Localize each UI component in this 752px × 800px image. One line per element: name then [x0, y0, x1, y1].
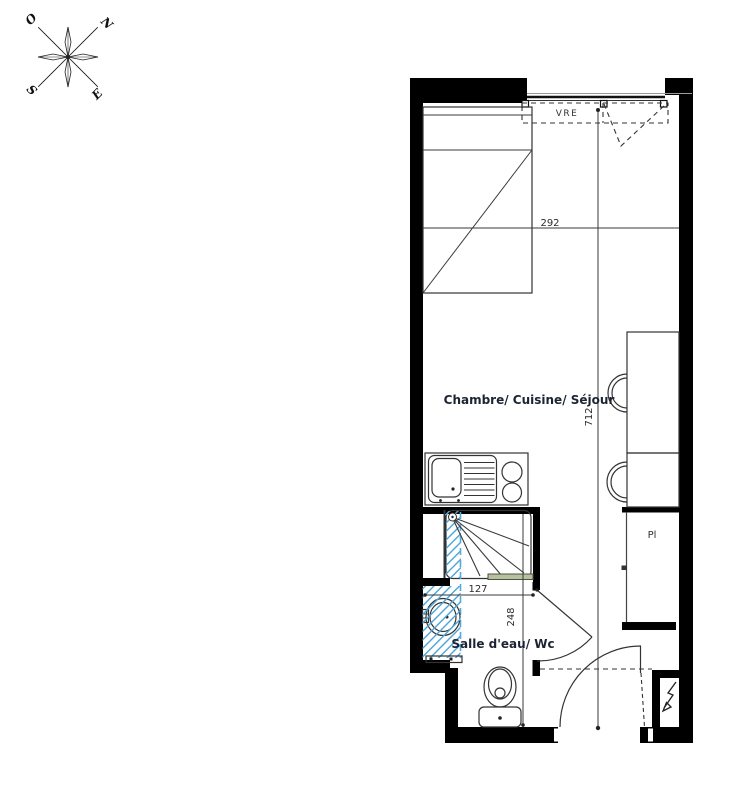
closet-label: Pl [648, 530, 657, 541]
floor-plan-drawing: O N S E [0, 0, 752, 800]
shower-door-fold [452, 517, 529, 576]
burner [503, 483, 522, 502]
window-swing [604, 104, 666, 146]
drainboard [464, 463, 495, 496]
room-labels: Chambre/ Cuisine/ Séjour Salle d'eau/ Wc [444, 393, 615, 651]
floor-plan-page: O N S E [0, 0, 752, 800]
entry-door [560, 646, 645, 727]
dim-292-label: 292 [540, 218, 559, 229]
compass-east-label: E [88, 85, 106, 103]
burner [502, 462, 522, 482]
kitchenette [425, 453, 528, 505]
lightning-arrow-icon [663, 682, 676, 711]
sink-basin [432, 459, 461, 498]
bed [423, 107, 532, 293]
window-post [601, 101, 608, 108]
main-room-label: Chambre/ Cuisine/ Séjour [444, 393, 615, 407]
compass-south-label: S [24, 82, 40, 98]
bathroom-label: Salle d'eau/ Wc [451, 637, 554, 651]
electrical-panel [663, 682, 676, 711]
shower-entry-door [488, 574, 533, 580]
chair [607, 462, 627, 502]
window-with-shutter: VRE [522, 94, 692, 147]
compass-north-label: N [97, 14, 116, 33]
shutter-housing [522, 103, 668, 123]
desk-unit [607, 332, 679, 507]
shutter-label: VRE [556, 109, 579, 119]
compass-rose-icon: O N S E [23, 10, 117, 103]
window-post [522, 101, 529, 108]
compass-west-label: O [23, 10, 41, 28]
toilet [479, 667, 521, 727]
dim-127-label: 127 [468, 584, 487, 595]
dim-712-label: 712 [584, 407, 595, 426]
closet-pl: Pl [622, 512, 657, 622]
vanity-sink [423, 586, 463, 663]
dim-248-label: 248 [506, 607, 517, 626]
